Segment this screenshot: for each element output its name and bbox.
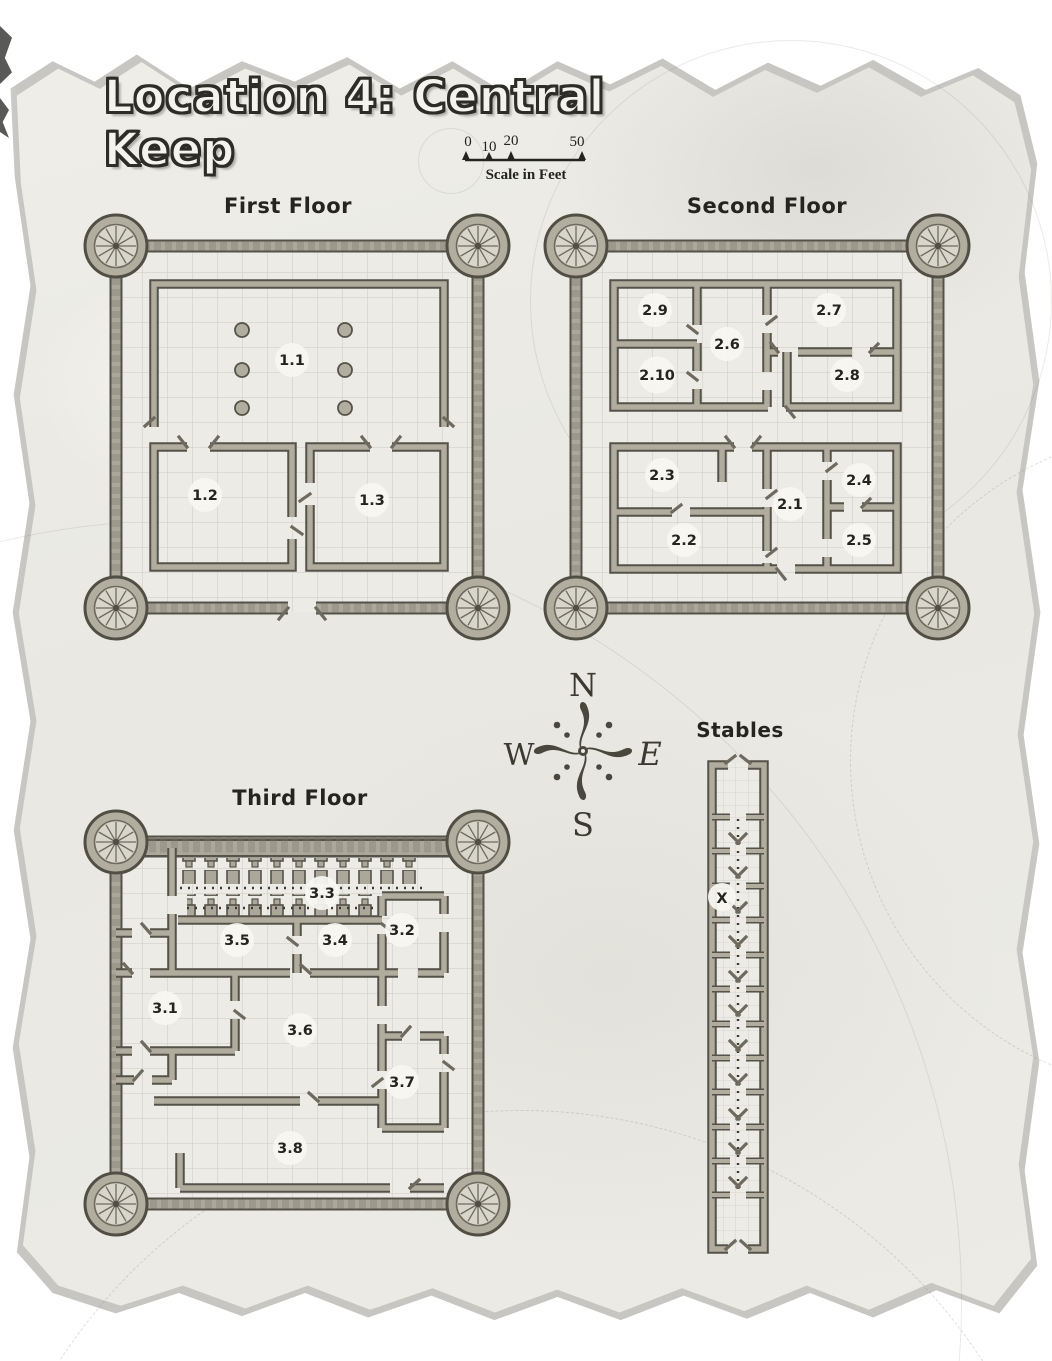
svg-text:3.2: 3.2 — [389, 923, 415, 939]
room-label: 2.8 — [830, 358, 864, 392]
room-label: 1.3 — [355, 483, 389, 517]
svg-text:3.5: 3.5 — [224, 933, 250, 949]
third-floor-plan: 3.3 3.2 3.5 3.4 3.1 3.6 3.7 3.8 — [92, 818, 502, 1228]
svg-text:2.9: 2.9 — [642, 303, 668, 319]
scale-tick-20: 20 — [504, 133, 519, 149]
second-floor-plan: 2.9 2.6 2.7 2.10 2.8 2.3 2.1 2.4 2.2 2.5 — [552, 222, 962, 632]
room-label: 3.5 — [220, 923, 254, 957]
svg-text:2.8: 2.8 — [834, 368, 860, 384]
scale-tick-0: 0 — [464, 134, 472, 150]
compass-letter-south: S — [572, 806, 594, 844]
svg-text:2.5: 2.5 — [846, 533, 872, 549]
second-floor-label: Second Floor — [637, 194, 897, 218]
room-label: 1.2 — [188, 478, 222, 512]
room-label: 3.6 — [283, 1013, 317, 1047]
scale-caption: Scale in Feet — [486, 167, 567, 183]
stall-marker-x: X — [708, 883, 736, 911]
scale-tick-50: 50 — [570, 134, 585, 150]
room-label: 2.4 — [842, 463, 876, 497]
stables-label: Stables — [665, 718, 815, 742]
floor-area — [112, 242, 482, 612]
svg-text:2.7: 2.7 — [816, 303, 842, 319]
svg-text:1.2: 1.2 — [192, 488, 218, 504]
room-label: 2.10 — [639, 357, 676, 394]
svg-text:2.6: 2.6 — [714, 337, 740, 353]
torn-edge-mark — [0, 26, 12, 84]
room-label: 3.7 — [385, 1065, 419, 1099]
svg-text:3.4: 3.4 — [322, 933, 348, 949]
compass-arms — [534, 702, 632, 800]
first-floor-label: First Floor — [158, 194, 418, 218]
svg-text:2.4: 2.4 — [846, 473, 872, 489]
svg-text:3.8: 3.8 — [277, 1141, 303, 1157]
scale-bar: 0 10 20 50 Scale in Feet — [460, 132, 600, 186]
room-label: 2.3 — [645, 458, 679, 492]
svg-text:X: X — [716, 891, 727, 907]
page-title: Location 4: Central Keep — [104, 70, 744, 176]
svg-text:2.1: 2.1 — [777, 497, 803, 513]
svg-text:2.3: 2.3 — [649, 468, 675, 484]
room-label: 3.3 — [305, 876, 339, 910]
svg-text:3.7: 3.7 — [389, 1075, 415, 1091]
svg-text:2.10: 2.10 — [639, 368, 675, 384]
svg-text:1.1: 1.1 — [279, 353, 305, 369]
compass-letter-north: N — [569, 666, 597, 704]
room-label: 2.9 — [638, 293, 672, 327]
room-label: 1.1 — [275, 343, 309, 377]
room-label: 2.2 — [667, 523, 701, 557]
room-label: 2.5 — [842, 523, 876, 557]
svg-text:3.6: 3.6 — [287, 1023, 313, 1039]
stables-plan: X — [698, 755, 778, 1260]
torn-edge-mark — [0, 98, 9, 138]
map-page: Location 4: Central Keep 0 10 20 50 Scal… — [0, 0, 1052, 1361]
room-label: 3.8 — [273, 1131, 307, 1165]
room-label: 2.7 — [812, 293, 846, 327]
svg-text:1.3: 1.3 — [359, 493, 385, 509]
room-label: 2.6 — [710, 327, 744, 361]
svg-text:2.2: 2.2 — [671, 533, 697, 549]
svg-text:3.1: 3.1 — [152, 1001, 178, 1017]
first-floor-plan: 1.1 1.2 1.3 — [92, 222, 502, 632]
svg-text:3.3: 3.3 — [309, 886, 335, 902]
room-label: 3.4 — [318, 923, 352, 957]
compass-letter-west: W — [504, 738, 535, 773]
third-floor-label: Third Floor — [170, 786, 430, 810]
compass-rose: N E S W — [498, 666, 668, 836]
room-label: 3.1 — [148, 991, 182, 1025]
room-label: 2.1 — [773, 487, 807, 521]
room-label: 3.2 — [385, 913, 419, 947]
compass-letter-east: E — [637, 735, 661, 773]
floor-area — [572, 242, 942, 612]
